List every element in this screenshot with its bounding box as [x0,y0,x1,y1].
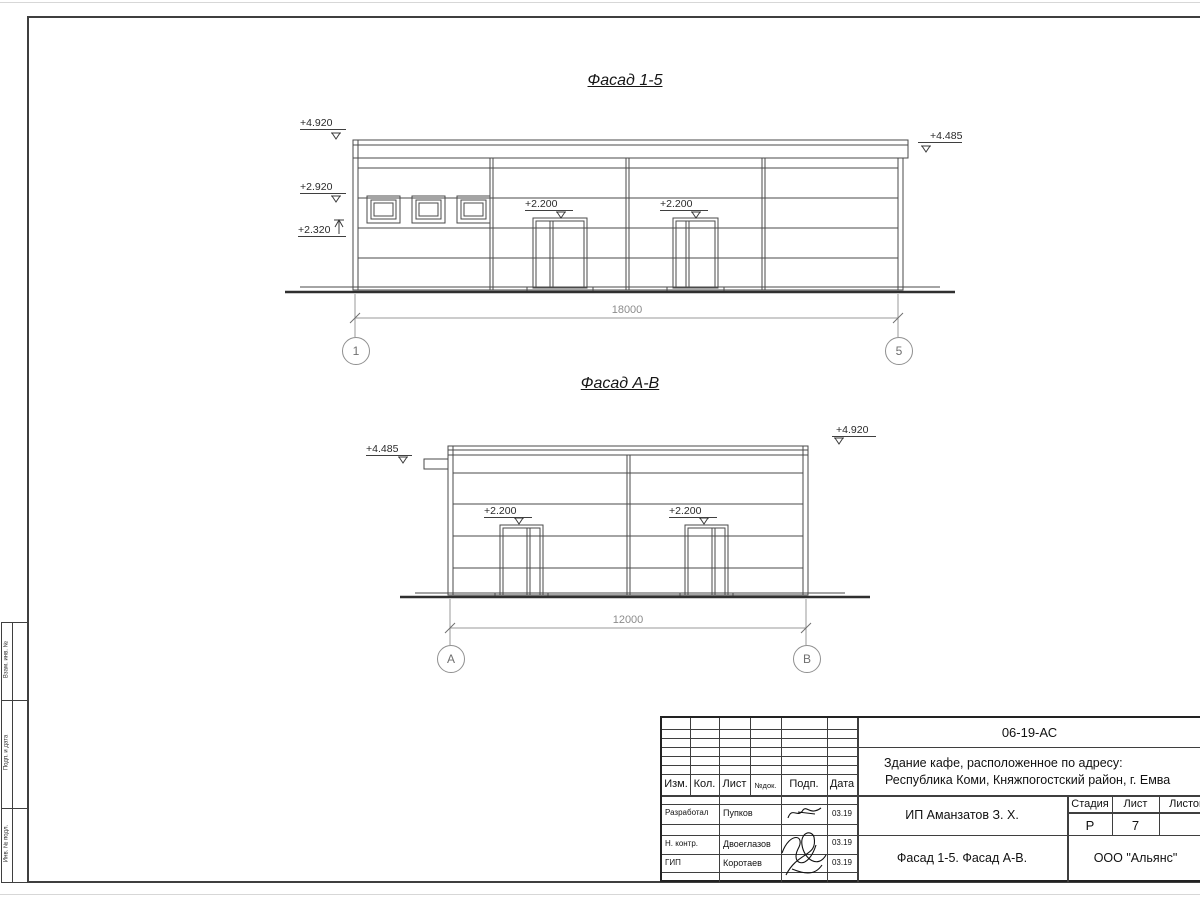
col-data: Дата [827,778,857,790]
f1-siding-lines [358,168,898,258]
f1-elev-roof-right: +4.485 [918,130,962,143]
f1-parapet [353,140,908,158]
row2-role: Н. контр. [665,839,698,848]
f1-elev-low-left: +2.320 [298,224,346,237]
f1-panel-joints [490,158,765,290]
sheet-title: Фасад 1-5. Фасад А-В. [857,851,1067,865]
axis-bubble-1: 1 [342,337,370,365]
axis-bubble-b: В [793,645,821,673]
f1-elev-door1: +2.200 [525,198,573,211]
f2-elev-door2: +2.200 [669,505,717,518]
col-list: Лист [719,778,750,790]
col-izm: Изм. [662,778,690,790]
row2-name: Двоеглазов [723,839,771,849]
f1-elev-mid-left: +2.920 [300,181,346,194]
client-name: ИП Аманзатов З. Х. [857,808,1067,822]
project-name-line1: Здание кафе, расположенное по адресу: [884,755,1123,772]
doc-number: 06-19-АС [857,725,1200,740]
stage-label: Стадия [1068,798,1112,810]
row3-role: ГИП [665,858,681,867]
col-kol: Кол. [690,778,719,790]
f2-elev-roof-left: +4.485 [366,443,412,456]
row1-date: 03.19 [827,809,857,818]
row3-name: Коротаев [723,858,762,868]
facade-a-v-title: Фасад А-В [535,375,705,393]
f1-wall [353,158,903,290]
f2-elev-door1: +2.200 [484,505,532,518]
project-name-line2: Республика Коми, Княжпогостский район, г… [885,772,1170,789]
f1-dim-text: 18000 [577,304,677,316]
axis-bubble-a: А [437,645,465,673]
sheet-label: Лист [1112,798,1159,810]
f2-panel-joints [627,455,630,595]
axis-bubble-5: 5 [885,337,913,365]
row1-name: Пупков [723,808,753,818]
signature-razrabotal [782,803,826,823]
title-block: Изм. Кол. Лист №док. Подп. Дата Разработ… [660,716,1200,882]
f2-dim-text: 12000 [578,614,678,626]
row1-role: Разработал [665,808,709,817]
col-ndok: №док. [750,781,781,790]
f2-siding-lines [453,473,803,568]
facade-1-5-title: Фасад 1-5 [540,72,710,90]
sheet-number: 7 [1112,818,1159,833]
col-podp: Подп. [781,778,827,790]
f1-elev-door2: +2.200 [660,198,708,211]
stage-value: Р [1068,818,1112,833]
f2-elevation-arrows [398,438,844,524]
f2-wall-protrusion [424,459,448,469]
f2-elev-roof-right: +4.920 [832,424,876,437]
f1-windows [367,196,490,223]
organization-name: ООО "Альянс" [1069,851,1200,865]
facade-a-v-drawing [400,446,870,597]
signature-gip [774,825,832,881]
facade-1-5-drawing [285,140,955,292]
f1-elev-roof-left: +4.920 [300,117,346,130]
sheets-label: Листов [1159,798,1200,810]
drawing-sheet: Взам. инв. № Подп. и дата Инв. № подл. [0,0,1200,900]
